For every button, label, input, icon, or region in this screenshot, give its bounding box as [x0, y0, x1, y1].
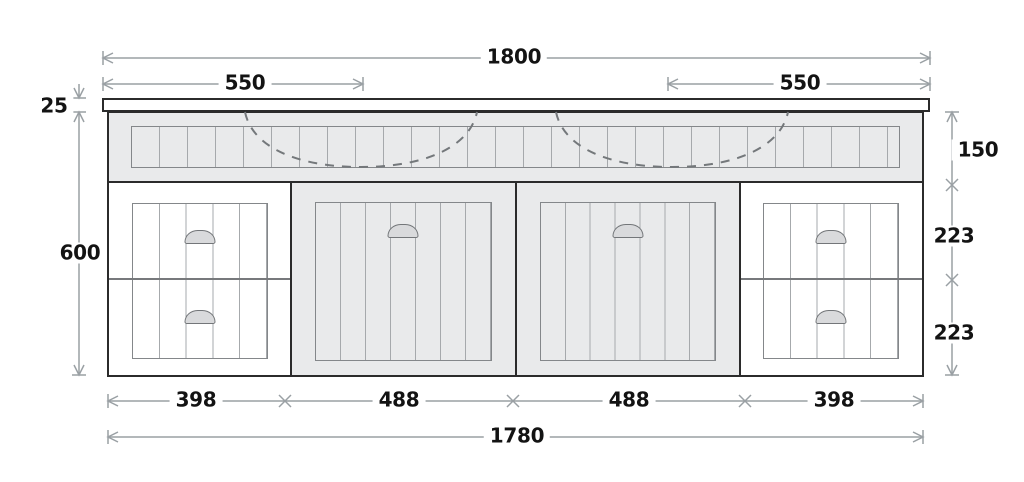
dim-label-benchtop-thickness: 25	[34, 96, 73, 117]
door-handle-icon	[388, 224, 419, 238]
dim-label-overall-top: 1800	[481, 47, 547, 68]
dim-label-bottom-drawer-height: 223	[928, 323, 981, 344]
dim-line-bottom-segments	[108, 394, 923, 408]
drawer-stack-right	[741, 183, 922, 375]
drawer-handle-icon	[816, 310, 847, 324]
cabinet-body	[107, 111, 924, 377]
door-right	[517, 183, 741, 375]
vanity-elevation-drawing: 1800 550 550 25 600 150 223 223 398 488 …	[0, 0, 1024, 482]
drawer-divider	[741, 278, 922, 280]
apron-vgroove-panel	[131, 126, 900, 168]
dim-label-right-door-width: 488	[603, 390, 656, 411]
apron	[109, 113, 922, 183]
dim-label-top-drawer-height: 223	[928, 226, 981, 247]
drawer-panel-left	[132, 203, 268, 359]
dim-line-benchtop-thickness	[72, 84, 86, 98]
dim-label-left-door-width: 488	[373, 390, 426, 411]
dim-label-basin-right-offset: 550	[774, 73, 827, 94]
drawer-stack-left	[109, 183, 292, 375]
dim-label-left-drawer-width: 398	[170, 390, 223, 411]
dim-label-apron-height: 150	[952, 140, 1005, 161]
dim-label-cabinet-width: 1780	[484, 426, 550, 447]
drawer-handle-icon	[816, 230, 847, 244]
dim-label-right-drawer-width: 398	[808, 390, 861, 411]
door-handle-icon	[612, 224, 643, 238]
dim-label-basin-left-offset: 550	[219, 73, 272, 94]
drawer-divider	[109, 278, 290, 280]
benchtop	[102, 98, 930, 112]
door-left	[292, 183, 516, 375]
drawer-panel-right	[763, 203, 899, 359]
dim-label-cabinet-height: 600	[54, 243, 107, 264]
drawer-handle-icon	[184, 310, 215, 324]
drawer-handle-icon	[184, 230, 215, 244]
cabinet-sections	[109, 183, 922, 375]
